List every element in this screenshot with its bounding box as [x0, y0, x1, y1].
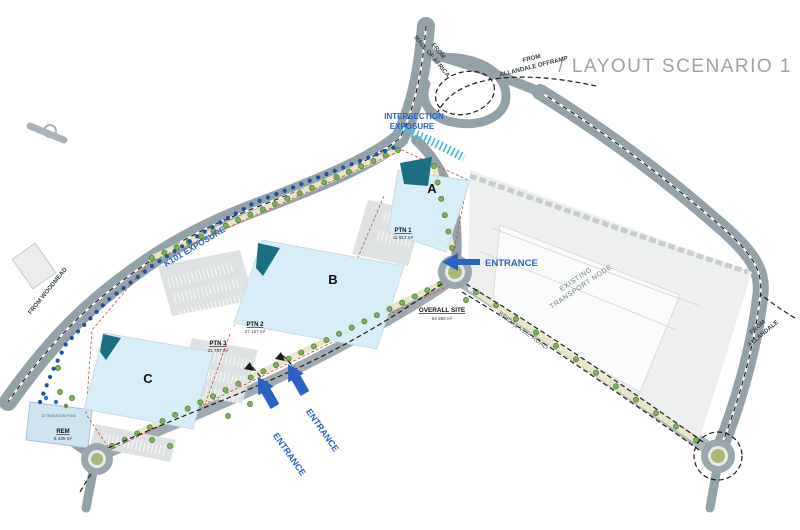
- building-b-letter: B: [328, 272, 337, 287]
- exposure-dot: [121, 286, 125, 290]
- exposure-dot: [48, 375, 52, 379]
- ptn3-area: 21 787 m²: [208, 348, 229, 353]
- exposure-dot: [249, 202, 253, 206]
- exposure-dot: [95, 310, 99, 314]
- ptn2-name: PTN 2: [246, 322, 264, 328]
- roundabout-2-island: [711, 449, 725, 463]
- exposure-dot: [150, 264, 154, 268]
- page-title: / LAYOUT SCENARIO 1: [558, 56, 792, 77]
- tree: [248, 375, 253, 380]
- tree: [673, 424, 678, 429]
- exposure-dot: [291, 185, 295, 189]
- tree: [311, 344, 316, 349]
- tree: [149, 437, 154, 442]
- tree: [69, 395, 74, 400]
- exposure-dot: [101, 303, 105, 307]
- layout-scenario-drawing: / LAYOUT SCENARIO 1 FROM MALL OF AFRICA …: [0, 0, 800, 530]
- tree: [185, 406, 190, 411]
- tree: [236, 381, 241, 386]
- tree: [553, 343, 558, 348]
- exposure-dot: [41, 392, 45, 396]
- roundabout-1-island: [91, 453, 103, 465]
- exposure-dot: [266, 195, 270, 199]
- exposure-dot: [45, 383, 49, 387]
- exposure-dot: [333, 169, 337, 173]
- exposure-dot: [242, 207, 246, 211]
- tree: [198, 400, 203, 405]
- entrance-south2-text: ENTRANCE: [271, 431, 308, 478]
- tree: [272, 201, 277, 206]
- tree: [336, 331, 341, 336]
- offsite-building-footprint: [12, 243, 56, 289]
- tree: [425, 288, 430, 293]
- intersection-exposure-line1: INTERSECTION: [384, 112, 444, 121]
- tree: [653, 410, 658, 415]
- tree: [223, 223, 228, 228]
- exposure-dot: [128, 280, 132, 284]
- exposure-dot: [143, 269, 147, 273]
- tree: [442, 213, 447, 218]
- tree: [371, 158, 376, 163]
- rem-area: 8 435 m²: [54, 436, 73, 441]
- building-a-letter: A: [427, 181, 437, 196]
- tree: [346, 169, 351, 174]
- tree: [57, 389, 62, 394]
- exposure-dot: [56, 359, 60, 363]
- tree: [299, 350, 304, 355]
- exposure-dot: [88, 316, 92, 320]
- exposure-dot: [60, 351, 64, 355]
- exposure-dot: [383, 149, 387, 153]
- entrance-east-label: ENTRANCE: [485, 258, 538, 269]
- tree: [248, 212, 253, 217]
- exposure-dot: [136, 275, 140, 279]
- tree: [334, 174, 339, 179]
- exposure-dot: [70, 336, 74, 340]
- attenuation-pond: [26, 402, 92, 448]
- tree: [633, 397, 638, 402]
- attenuation-pond-label: ATTENUATION POND: [42, 414, 77, 418]
- exposure-dot: [226, 216, 230, 220]
- tree: [693, 437, 698, 442]
- exposure-dot: [82, 323, 86, 327]
- tree: [400, 300, 405, 305]
- rem-name: REM: [56, 429, 69, 435]
- exposure-dot: [283, 189, 287, 193]
- tree: [613, 384, 618, 389]
- tree: [387, 306, 392, 311]
- tree: [463, 297, 468, 302]
- exposure-dot: [114, 291, 118, 295]
- building-c-letter: C: [143, 371, 153, 386]
- exposure-dot: [64, 342, 68, 346]
- overall-site-area: 64 360 m²: [432, 316, 453, 321]
- exposure-dot: [76, 329, 80, 333]
- intersection-exposure-line2: EXPOSURE: [390, 122, 435, 131]
- tree: [573, 357, 578, 362]
- exposure-dot: [316, 175, 320, 179]
- exposure-dot: [38, 400, 42, 404]
- tree: [493, 303, 498, 308]
- tree: [322, 180, 327, 185]
- exposure-dot: [308, 179, 312, 183]
- overall-site-name: OVERALL SITE: [419, 307, 466, 314]
- tree: [149, 255, 154, 260]
- tree: [223, 387, 228, 392]
- tree: [147, 425, 152, 430]
- ptn3-name: PTN 3: [209, 341, 227, 347]
- tree: [160, 418, 165, 423]
- tree: [439, 196, 444, 201]
- tree: [225, 413, 230, 418]
- exposure-dot: [391, 146, 395, 150]
- tree: [431, 163, 436, 168]
- intersection-exposure-label: INTERSECTION EXPOSURE: [384, 112, 444, 131]
- north-stub-road: [30, 126, 64, 140]
- ptn1-area: 11 617 m²: [393, 235, 414, 240]
- ptn1-name: PTN 1: [394, 228, 412, 234]
- exposure-dot: [257, 199, 261, 203]
- tree: [449, 245, 454, 250]
- tree: [412, 294, 417, 299]
- exposure-dot: [234, 211, 238, 215]
- exposure-dot: [375, 152, 379, 156]
- tree: [593, 370, 598, 375]
- landscape-dot-0: [44, 396, 48, 400]
- parcel-label-overall-site: OVERALL SITE 64 360 m²: [419, 307, 466, 321]
- tree: [359, 164, 364, 169]
- tree: [172, 412, 177, 417]
- exposure-dot: [324, 172, 328, 176]
- exposure-dot: [358, 159, 362, 163]
- tree: [446, 229, 451, 234]
- tree: [285, 196, 290, 201]
- exposure-dot: [52, 367, 56, 371]
- landscape-dot-1: [54, 400, 58, 404]
- tree: [383, 153, 388, 158]
- landscape-dot-2: [64, 404, 68, 408]
- exposure-dot: [341, 165, 345, 169]
- exposure-dot: [366, 156, 370, 160]
- tree: [309, 185, 314, 190]
- tree: [297, 191, 302, 196]
- entrance-south2-label: ENTRANCE: [271, 431, 308, 478]
- tree: [273, 362, 278, 367]
- tree: [261, 369, 266, 374]
- tree: [174, 245, 179, 250]
- tree: [55, 365, 60, 370]
- ptn2-area: 27 127 m²: [245, 329, 266, 334]
- site-plan-canvas: / LAYOUT SCENARIO 1 FROM MALL OF AFRICA …: [0, 0, 800, 530]
- tree: [167, 443, 172, 448]
- exposure-dot: [299, 182, 303, 186]
- tree: [260, 207, 265, 212]
- tree: [349, 325, 354, 330]
- tree: [247, 401, 252, 406]
- tree: [324, 337, 329, 342]
- tree: [374, 313, 379, 318]
- exposure-dot: [107, 297, 111, 301]
- tree: [362, 319, 367, 324]
- tree: [236, 218, 241, 223]
- tree: [135, 431, 140, 436]
- tree: [395, 147, 400, 152]
- exposure-dot: [274, 192, 278, 196]
- exposure-dot: [349, 162, 353, 166]
- tree: [210, 394, 215, 399]
- entrance-south1-label: ENTRANCE: [304, 407, 341, 454]
- entrance-south1-text: ENTRANCE: [304, 407, 341, 454]
